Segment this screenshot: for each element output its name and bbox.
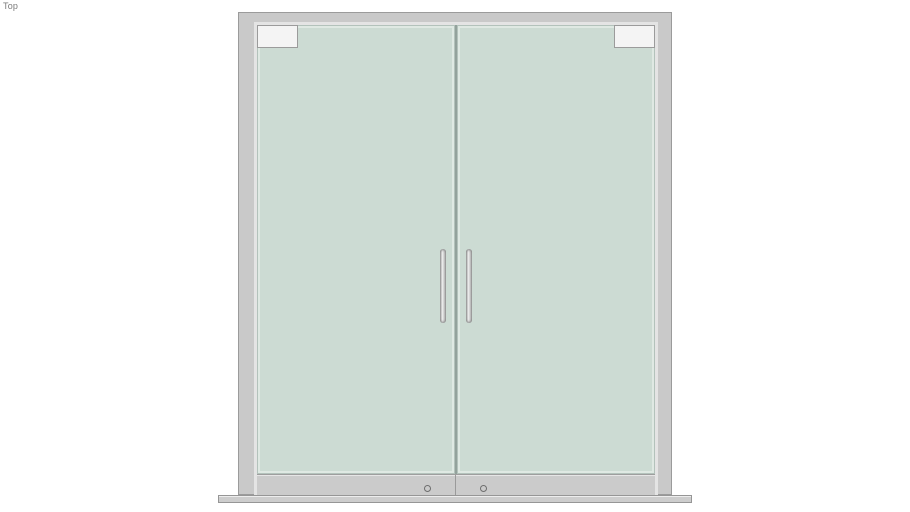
door-handle-left[interactable]: [440, 249, 446, 323]
door-handle-right[interactable]: [466, 249, 472, 323]
glass-leaf-left[interactable]: [257, 25, 455, 474]
double-glass-door-model[interactable]: [238, 12, 672, 503]
rail-divider-line: [455, 475, 456, 497]
threshold[interactable]: [218, 495, 692, 503]
patch-fitting-top-left[interactable]: [257, 25, 298, 48]
glass-leaf-right[interactable]: [457, 25, 655, 474]
patch-fitting-top-right[interactable]: [614, 25, 655, 48]
door-frame[interactable]: [238, 12, 672, 495]
floor-pivot-left[interactable]: [424, 485, 431, 492]
view-label: Top: [3, 1, 18, 11]
floor-pivot-right[interactable]: [480, 485, 487, 492]
bottom-rail[interactable]: [257, 474, 655, 496]
door-opening: [257, 25, 655, 496]
